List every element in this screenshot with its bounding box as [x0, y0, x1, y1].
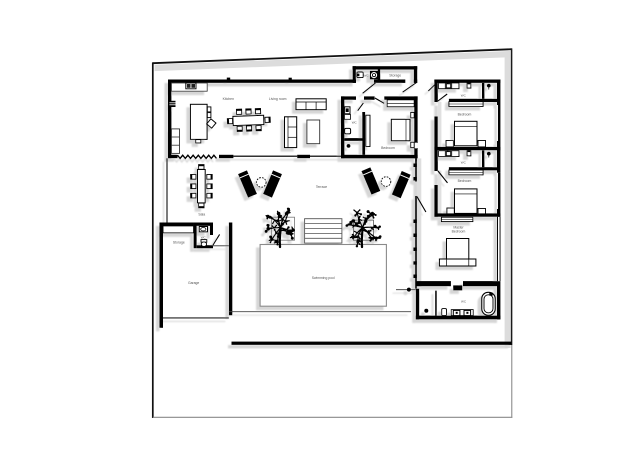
svg-text:WC: WC	[364, 73, 370, 77]
svg-text:Bedroom: Bedroom	[458, 179, 472, 183]
svg-text:WC: WC	[461, 161, 467, 165]
svg-text:Storage: Storage	[389, 73, 401, 77]
svg-text:Terrace: Terrace	[316, 185, 327, 189]
svg-text:WC: WC	[352, 121, 358, 125]
svg-text:Bedroom: Bedroom	[452, 230, 466, 234]
svg-text:Bedroom: Bedroom	[381, 146, 395, 150]
svg-text:Storage: Storage	[173, 240, 185, 244]
svg-text:WC: WC	[201, 236, 207, 240]
svg-text:Garage: Garage	[188, 281, 199, 285]
svg-text:Swimming pool: Swimming pool	[312, 276, 335, 280]
svg-text:Sala: Sala	[198, 213, 205, 217]
svg-text:WC: WC	[461, 300, 467, 304]
svg-text:WC: WC	[461, 94, 467, 98]
svg-text:Bedroom: Bedroom	[458, 112, 472, 116]
svg-text:Living room: Living room	[269, 97, 287, 101]
svg-text:Kitchen: Kitchen	[223, 97, 234, 101]
